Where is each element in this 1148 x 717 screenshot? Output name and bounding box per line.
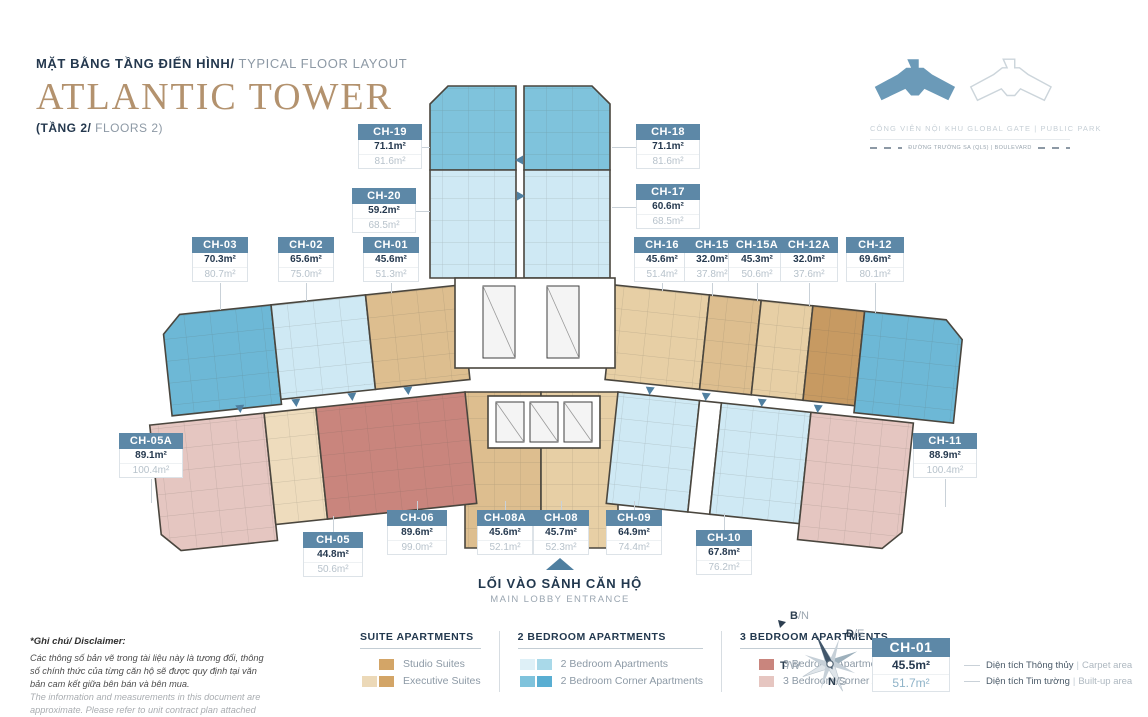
unit-carpet-area: 88.9m²	[914, 449, 976, 463]
leader-line	[634, 501, 635, 510]
key-sample-unit: CH-01 45.5m² 51.7m²	[872, 638, 950, 692]
unit-id: CH-11	[913, 433, 977, 449]
disclaimer-vi: Các thông số bản vẽ trong tài liệu này l…	[30, 652, 272, 691]
leader-line	[724, 513, 725, 530]
entrance-marker-icon	[403, 387, 413, 396]
compass-west-label: T/W	[780, 660, 800, 672]
elevator-core	[455, 278, 615, 368]
unit-id: CH-20	[352, 188, 416, 204]
unit-builtup-area: 81.6m²	[637, 154, 699, 168]
unit-builtup-area: 99.0m²	[388, 540, 446, 554]
unit-label-CH-16: CH-1645.6m²51.4m²	[634, 237, 690, 282]
room-lines	[854, 311, 964, 423]
unit-builtup-area: 50.6m²	[729, 267, 785, 281]
unit-builtup-area: 75.0m²	[279, 267, 333, 281]
unit-builtup-area: 68.5m²	[637, 214, 699, 228]
legend-item: Executive Suites	[360, 675, 481, 687]
room-lines	[606, 392, 699, 512]
key-carpet-value: 45.5m²	[873, 657, 949, 674]
unit-id: CH-17	[636, 184, 700, 200]
leader-line	[220, 283, 221, 310]
key-builtup-value: 51.7m²	[873, 674, 949, 691]
compass-south-label: N/S	[828, 676, 846, 688]
unit-label-CH-02: CH-0265.6m²75.0m²	[278, 237, 334, 282]
unit-id: CH-05A	[119, 433, 183, 449]
unit-label-CH-12: CH-1269.6m²80.1m²	[846, 237, 904, 282]
entrance-label-vi: LỐI VÀO SẢNH CĂN HỘ	[465, 576, 655, 591]
room-lines	[524, 170, 610, 278]
unit-label-CH-06: CH-0689.6m²99.0m²	[387, 510, 447, 555]
entrance-marker-icon	[645, 387, 655, 396]
unit-id: CH-08	[533, 510, 589, 526]
legend-swatch	[520, 659, 535, 670]
key-unit-id: CH-01	[872, 638, 950, 657]
unit-builtup-area: 50.6m²	[304, 562, 362, 576]
unit-carpet-area: 32.0m²	[781, 253, 837, 267]
floor-plan-drawing	[0, 0, 1148, 717]
unit-label-CH-08A: CH-08A45.6m²52.1m²	[477, 510, 533, 555]
unit-builtup-area: 100.4m²	[120, 463, 182, 477]
unit-id: CH-02	[278, 237, 334, 253]
room-lines	[710, 403, 811, 524]
leader-line	[505, 501, 506, 510]
legend-swatch	[379, 659, 394, 670]
entrance-label-en: MAIN LOBBY ENTRANCE	[465, 594, 655, 605]
room-lines	[430, 86, 516, 170]
unit-id: CH-12A	[780, 237, 838, 253]
leader-line	[417, 501, 418, 510]
unit-label-CH-05: CH-0544.8m²50.6m²	[303, 532, 363, 577]
unit-id: CH-08A	[477, 510, 533, 526]
room-lines	[271, 295, 375, 399]
unit-label-CH-15A: CH-15A45.3m²50.6m²	[728, 237, 786, 282]
room-lines	[751, 300, 813, 400]
unit-carpet-area: 45.6m²	[635, 253, 689, 267]
leader-line	[757, 283, 758, 301]
room-lines	[316, 392, 477, 519]
unit-carpet-area: 69.6m²	[847, 253, 903, 267]
leader-line	[333, 516, 334, 532]
unit-id: CH-19	[358, 124, 422, 140]
unit-label-CH-05A: CH-05A89.1m²100.4m²	[119, 433, 183, 478]
unit-builtup-area: 100.4m²	[914, 463, 976, 477]
leader-line	[391, 283, 392, 293]
unit-builtup-area: 51.4m²	[635, 267, 689, 281]
leader-line	[306, 283, 307, 301]
legend-swatch	[537, 676, 552, 687]
unit-carpet-area: 45.7m²	[534, 526, 588, 540]
unit-carpet-area: 89.6m²	[388, 526, 446, 540]
unit-id: CH-18	[636, 124, 700, 140]
unit-id: CH-10	[696, 530, 752, 546]
room-lines	[803, 306, 865, 406]
unit-builtup-area: 68.5m²	[353, 218, 415, 232]
leader-line	[945, 479, 946, 507]
unit-id: CH-12	[846, 237, 904, 253]
unit-carpet-area: 45.3m²	[729, 253, 785, 267]
leader-line	[416, 211, 430, 212]
unit-carpet-area: 71.1m²	[359, 140, 421, 154]
legend-swatch	[537, 659, 552, 670]
unit-label-CH-01: CH-0145.6m²51.3m²	[363, 237, 419, 282]
unit-label-CH-10: CH-1067.8m²76.2m²	[696, 530, 752, 575]
legend-swatch	[520, 676, 535, 687]
legend-item: 2 Bedroom Corner Apartments	[518, 675, 703, 687]
leader-line	[875, 283, 876, 313]
legend-group-title: SUITE APARTMENTS	[360, 631, 481, 649]
unit-builtup-area: 37.6m²	[781, 267, 837, 281]
legend-item: 2 Bedroom Apartments	[518, 658, 703, 670]
unit-carpet-area: 45.6m²	[364, 253, 418, 267]
main-entrance-label: LỐI VÀO SẢNH CĂN HỘ MAIN LOBBY ENTRANCE	[465, 558, 655, 605]
leader-line	[662, 283, 663, 291]
unit-id: CH-06	[387, 510, 447, 526]
brochure-page: MẶT BẰNG TẦNG ĐIỂN HÌNH/ TYPICAL FLOOR L…	[0, 0, 1148, 717]
unit-id: CH-16	[634, 237, 690, 253]
unit-builtup-area: 74.4m²	[607, 540, 661, 554]
legend-item-label: 2 Bedroom Apartments	[561, 658, 668, 670]
entrance-marker-icon	[701, 393, 711, 402]
unit-carpet-area: 70.3m²	[193, 253, 247, 267]
north-arrow-icon	[778, 620, 786, 628]
unit-id: CH-01	[363, 237, 419, 253]
unit-builtup-area: 76.2m²	[697, 560, 751, 574]
disclaimer-title: *Ghi chú/ Disclaimer:	[30, 636, 272, 647]
unit-label-CH-20: CH-2059.2m²68.5m²	[352, 188, 416, 233]
unit-label-CH-08: CH-0845.7m²52.3m²	[533, 510, 589, 555]
compass-north-label: B/N	[790, 610, 809, 622]
room-lines	[798, 412, 914, 550]
legend-group-title: 2 BEDROOM APARTMENTS	[518, 631, 703, 649]
room-lines	[700, 295, 762, 395]
unit-carpet-area: 45.6m²	[478, 526, 532, 540]
unit-builtup-area: 51.3m²	[364, 267, 418, 281]
unit-label-CH-12A: CH-12A32.0m²37.6m²	[780, 237, 838, 282]
unit-carpet-area: 64.9m²	[607, 526, 661, 540]
unit-carpet-area: 89.1m²	[120, 449, 182, 463]
entrance-marker-icon	[291, 399, 301, 408]
unit-carpet-area: 71.1m²	[637, 140, 699, 154]
room-lines	[162, 305, 282, 416]
unit-carpet-area: 44.8m²	[304, 548, 362, 562]
unit-label-CH-03: CH-0370.3m²80.7m²	[192, 237, 248, 282]
legend-item-label: Studio Suites	[403, 658, 465, 670]
legend-swatch	[379, 676, 394, 687]
legend-group: 2 BEDROOM APARTMENTS2 Bedroom Apartments…	[499, 631, 721, 692]
unit-carpet-area: 65.6m²	[279, 253, 333, 267]
disclaimer-en: The information and measurements in this…	[30, 691, 272, 717]
legend-group: SUITE APARTMENTSStudio SuitesExecutive S…	[342, 631, 499, 692]
unit-builtup-area: 52.3m²	[534, 540, 588, 554]
leader-line	[612, 147, 636, 148]
unit-label-CH-09: CH-0964.9m²74.4m²	[606, 510, 662, 555]
leader-line	[809, 283, 810, 306]
unit-label-CH-17: CH-1760.6m²68.5m²	[636, 184, 700, 229]
unit-label-CH-18: CH-1871.1m²81.6m²	[636, 124, 700, 169]
legend-item: Studio Suites	[360, 658, 481, 670]
unit-id: CH-05	[303, 532, 363, 548]
unit-id: CH-09	[606, 510, 662, 526]
room-lines	[605, 285, 709, 389]
unit-builtup-area: 81.6m²	[359, 154, 421, 168]
room-lines	[430, 170, 516, 278]
unit-label-CH-19: CH-1971.1m²81.6m²	[358, 124, 422, 169]
entrance-marker-icon	[347, 393, 357, 402]
compass-east-label: Đ/E	[846, 628, 864, 640]
leader-line	[712, 283, 713, 296]
legend-swatch	[362, 676, 377, 687]
unit-id: CH-03	[192, 237, 248, 253]
unit-carpet-area: 60.6m²	[637, 200, 699, 214]
legend-item-label: 2 Bedroom Corner Apartments	[561, 675, 703, 687]
unit-builtup-area: 80.1m²	[847, 267, 903, 281]
leader-line	[151, 479, 152, 503]
leader-line	[561, 501, 562, 510]
unit-label-CH-11: CH-1188.9m²100.4m²	[913, 433, 977, 478]
leader-line	[422, 147, 430, 148]
unit-id: CH-15A	[728, 237, 786, 253]
key-carpet-desc: Diện tích Thông thủy|Carpet area	[964, 660, 1132, 671]
leader-line	[612, 207, 636, 208]
legend-item-label: Executive Suites	[403, 675, 481, 687]
unit-builtup-area: 52.1m²	[478, 540, 532, 554]
disclaimer: *Ghi chú/ Disclaimer: Các thông số bản v…	[30, 636, 272, 717]
unit-builtup-area: 80.7m²	[193, 267, 247, 281]
room-lines	[524, 86, 610, 170]
key-builtup-desc: Diện tích Tim tường|Built-up area	[964, 676, 1132, 687]
unit-carpet-area: 59.2m²	[353, 204, 415, 218]
entrance-arrow-icon	[546, 558, 574, 570]
unit-carpet-area: 67.8m²	[697, 546, 751, 560]
area-key: CH-01 45.5m² 51.7m² Diện tích Thông thủy…	[872, 638, 950, 692]
